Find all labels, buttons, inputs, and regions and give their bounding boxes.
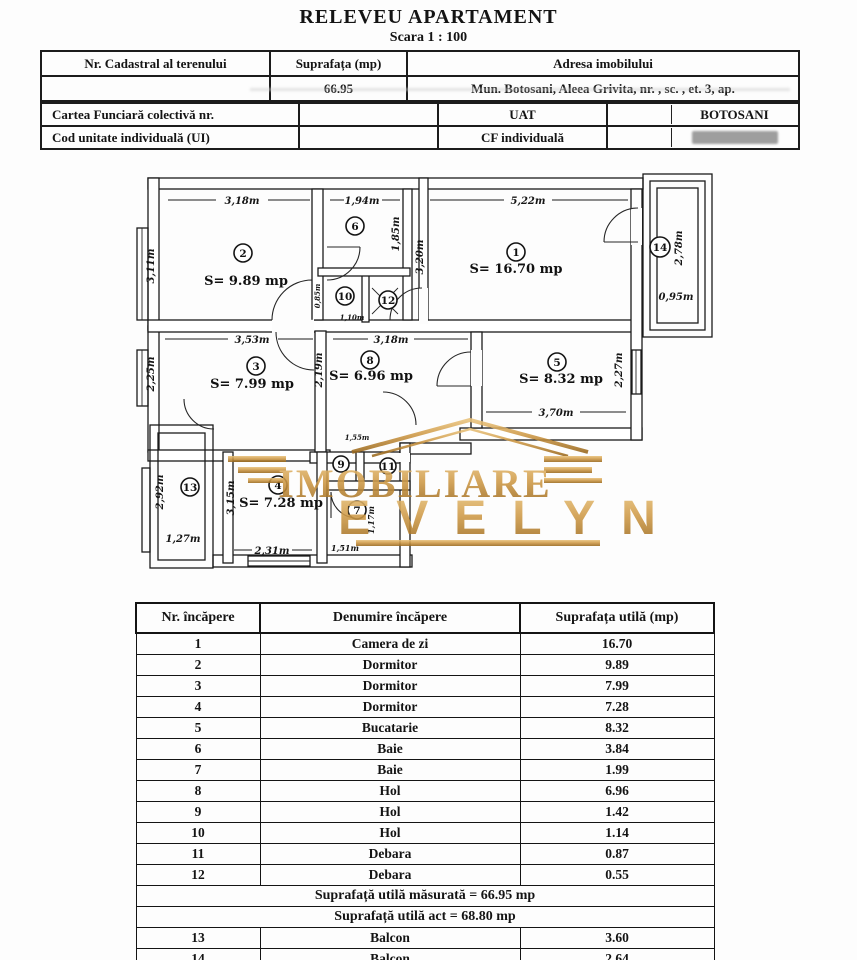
col-header-name: Denumire încăpere — [260, 603, 520, 633]
cell-area: 9.89 — [520, 655, 714, 676]
page-title: RELEVEU APARTAMENT — [0, 6, 857, 29]
cell-nr: 1 — [136, 633, 260, 655]
room2-number: 2 — [239, 248, 246, 260]
subtotal-act: Suprafață utilă act = 68.80 mp — [136, 907, 714, 928]
rooms-table: Nr. încăpere Denumire încăpere Suprafața… — [135, 602, 715, 960]
cell-name: Dormitor — [260, 697, 520, 718]
col-header-nr: Nr. încăpere — [136, 603, 260, 633]
cell-nr: 7 — [136, 760, 260, 781]
cadastral-col1-header: Nr. Cadastral al terenului — [41, 51, 270, 76]
table-row: 13Balcon3.60 — [136, 928, 714, 949]
cell-area: 16.70 — [520, 633, 714, 655]
room1-number: 1 — [512, 247, 519, 259]
cell-area: 1.14 — [520, 823, 714, 844]
room14-number: 14 — [653, 242, 668, 254]
scanned-document-page: RELEVEU APARTAMENT Scara 1 : 100 Nr. Cad… — [0, 0, 857, 960]
room3-area: S= 7.99 mp — [210, 377, 294, 392]
subtotal-measured: Suprafață utilă măsurată = 66.95 mp — [136, 886, 714, 907]
room8-number: 8 — [366, 355, 373, 367]
cf-empty-subcell — [609, 128, 672, 147]
uat-label: UAT — [438, 103, 607, 126]
room5-area: S= 8.32 mp — [519, 372, 603, 387]
redaction-smudge — [692, 131, 778, 144]
scale-subtitle: Scara 1 : 100 — [0, 30, 857, 46]
cell-name: Balcon — [260, 949, 520, 960]
cell-nr: 13 — [136, 928, 260, 949]
uat-value: BOTOSANI — [672, 105, 797, 124]
cell-area: 6.96 — [520, 781, 714, 802]
watermark-brand-name-2: EVELYN — [338, 492, 682, 545]
cadastral-table: Nr. Cadastral al terenului Suprafața (mp… — [40, 50, 800, 102]
dim-room6-top: 1,94m — [345, 196, 380, 207]
cf-redacted-value — [672, 128, 797, 147]
floor-plan: 3,18m 3,11m 1,94m 1,85m 5,22m 3,20m 2,78… — [133, 166, 719, 576]
subtotal-row: Suprafață utilă măsurată = 66.95 mp — [136, 886, 714, 907]
cell-area: 1.42 — [520, 802, 714, 823]
dim-balc13-bottom: 1,27m — [166, 534, 201, 545]
room2-area: S= 9.89 mp — [204, 274, 288, 289]
dim-room1-top: 5,22m — [511, 196, 546, 207]
cf-table: Cartea Funciară colectivă nr. UAT BOTOSA… — [40, 102, 800, 150]
watermark-right-bars — [544, 456, 602, 483]
cell-nr: 8 — [136, 781, 260, 802]
table-row: 11Debara0.87 — [136, 844, 714, 865]
dim-room6-right: 1,85m — [391, 217, 402, 252]
room13-number: 13 — [183, 482, 198, 494]
cell-name: Debara — [260, 844, 520, 865]
uat-value-box: BOTOSANI — [609, 105, 797, 124]
cf-individual-label: CF individuală — [438, 126, 607, 149]
scan-artifact — [250, 88, 790, 91]
cell-name: Camera de zi — [260, 633, 520, 655]
cell-nr: 11 — [136, 844, 260, 865]
table-row: 6Baie3.84 — [136, 739, 714, 760]
cell-nr: 2 — [136, 655, 260, 676]
watermark-underline — [356, 540, 600, 546]
cell-nr: 12 — [136, 865, 260, 886]
dim-room5-bottom: 3,70m — [539, 408, 574, 419]
cf-unit-value — [299, 126, 438, 149]
cf-row-2: Cod unitate individuală (UI) CF individu… — [41, 126, 799, 149]
dim-room4-left: 3,15m — [226, 481, 237, 516]
table-row: 1Camera de zi16.70 — [136, 633, 714, 655]
cf-individual-box — [609, 128, 797, 147]
table-row: 3Dormitor7.99 — [136, 676, 714, 697]
dim-room2-top: 3,18m — [225, 196, 260, 207]
cf-row-1: Cartea Funciară colectivă nr. UAT BOTOSA… — [41, 103, 799, 126]
room1-area: S= 16.70 mp — [470, 262, 563, 277]
cell-nr: 6 — [136, 739, 260, 760]
table-row: 2Dormitor9.89 — [136, 655, 714, 676]
cell-area: 7.99 — [520, 676, 714, 697]
dim-balc14-bottom: 0,95m — [659, 292, 694, 303]
cf-book-value — [299, 103, 438, 126]
room8-area: S= 6.96 mp — [329, 369, 413, 384]
cf-individual-value-cell — [607, 126, 799, 149]
table-row: 12Debara0.55 — [136, 865, 714, 886]
table-row: 4Dormitor7.28 — [136, 697, 714, 718]
cell-area: 2.64 — [520, 949, 714, 960]
dim-balc14-side: 2,78m — [674, 231, 685, 267]
cadastral-col3-header: Adresa imobilului — [407, 51, 799, 76]
room12-number: 12 — [381, 295, 396, 307]
cell-name: Hol — [260, 781, 520, 802]
table-row: 14Balcon2.64 — [136, 949, 714, 960]
cadastral-col1-value — [41, 76, 270, 101]
dim-room1-left: 3,20m — [415, 240, 426, 275]
cell-name: Baie — [260, 760, 520, 781]
cell-area: 0.55 — [520, 865, 714, 886]
table-row: 10Hol1.14 — [136, 823, 714, 844]
cell-area: 3.84 — [520, 739, 714, 760]
dim-room3-right: 2,19m — [314, 353, 325, 389]
cell-area: 0.87 — [520, 844, 714, 865]
table-row: 8Hol6.96 — [136, 781, 714, 802]
table-row: 5Bucatarie8.32 — [136, 718, 714, 739]
cell-area: 8.32 — [520, 718, 714, 739]
table-row: 9Hol1.42 — [136, 802, 714, 823]
col-header-area: Suprafața utilă (mp) — [520, 603, 714, 633]
watermark-left-bars — [228, 456, 286, 483]
cell-area: 3.60 — [520, 928, 714, 949]
cell-area: 1.99 — [520, 760, 714, 781]
dim-balc13-side: 2,92m — [155, 475, 166, 511]
room10-number: 10 — [338, 291, 353, 303]
table-row: 7Baie1.99 — [136, 760, 714, 781]
cell-name: Baie — [260, 739, 520, 760]
rooms-table-header-row: Nr. încăpere Denumire încăpere Suprafața… — [136, 603, 714, 633]
uat-empty-subcell — [609, 105, 672, 124]
dim-hall9-top: 1,55m — [345, 433, 369, 442]
cell-name: Dormitor — [260, 655, 520, 676]
room6-number: 6 — [351, 221, 358, 233]
cell-name: Hol — [260, 823, 520, 844]
dim-room5-right: 2,27m — [614, 353, 625, 389]
dim-room2-left: 3,11m — [146, 249, 157, 284]
cadastral-col2-header: Suprafața (mp) — [270, 51, 407, 76]
cell-nr: 5 — [136, 718, 260, 739]
cell-nr: 3 — [136, 676, 260, 697]
cf-book-label: Cartea Funciară colectivă nr. — [41, 103, 299, 126]
dim-hall8-top: 3,18m — [374, 335, 409, 346]
cell-name: Balcon — [260, 928, 520, 949]
dim-room3-left: 2,25m — [146, 357, 157, 393]
cell-nr: 10 — [136, 823, 260, 844]
subtotal-row: Suprafață utilă act = 68.80 mp — [136, 907, 714, 928]
cf-unit-label: Cod unitate individuală (UI) — [41, 126, 299, 149]
uat-value-cell: BOTOSANI — [607, 103, 799, 126]
dim-hall10-left: 0,85m — [313, 284, 322, 308]
cell-name: Debara — [260, 865, 520, 886]
dim-room3-top: 3,53m — [235, 335, 270, 346]
cell-nr: 14 — [136, 949, 260, 960]
cell-name: Dormitor — [260, 676, 520, 697]
dim-room4-bottom: 2,31m — [254, 546, 290, 557]
room3-number: 3 — [252, 361, 259, 373]
cadastral-header-row: Nr. Cadastral al terenului Suprafața (mp… — [41, 51, 799, 76]
cell-area: 7.28 — [520, 697, 714, 718]
room5-number: 5 — [553, 357, 560, 369]
cell-nr: 9 — [136, 802, 260, 823]
cell-name: Hol — [260, 802, 520, 823]
cell-nr: 4 — [136, 697, 260, 718]
dim-hall10-bottom: 1,10m — [340, 313, 364, 322]
cell-name: Bucatarie — [260, 718, 520, 739]
